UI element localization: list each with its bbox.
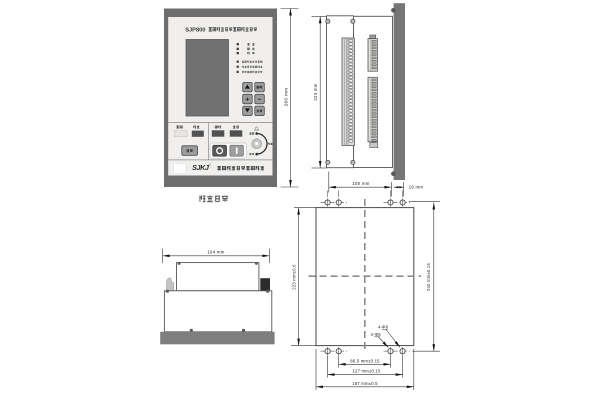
svg-text:4-Φ6: 4-Φ6 — [378, 325, 389, 330]
svg-text:19 mm: 19 mm — [409, 185, 424, 190]
svg-text:4-Φ6: 4-Φ6 — [371, 332, 382, 337]
svg-text:223 mm: 223 mm — [313, 83, 318, 100]
svg-text:223 mm±0.5: 223 mm±0.5 — [292, 264, 297, 290]
svg-text:127 mm±0.15: 127 mm±0.15 — [353, 369, 381, 374]
svg-text:167 mm±0.5: 167 mm±0.5 — [352, 381, 378, 386]
svg-text:SJP800: SJP800 — [185, 27, 205, 33]
svg-text:86.5 mm±0.15: 86.5 mm±0.15 — [350, 358, 380, 363]
svg-text:SJKJ: SJKJ — [192, 163, 210, 172]
svg-text:240 mm±0.15: 240 mm±0.15 — [426, 263, 431, 291]
svg-text:260 mm: 260 mm — [284, 88, 289, 107]
svg-text:164 mm: 164 mm — [207, 249, 224, 254]
svg-text:100 mm: 100 mm — [352, 181, 369, 186]
